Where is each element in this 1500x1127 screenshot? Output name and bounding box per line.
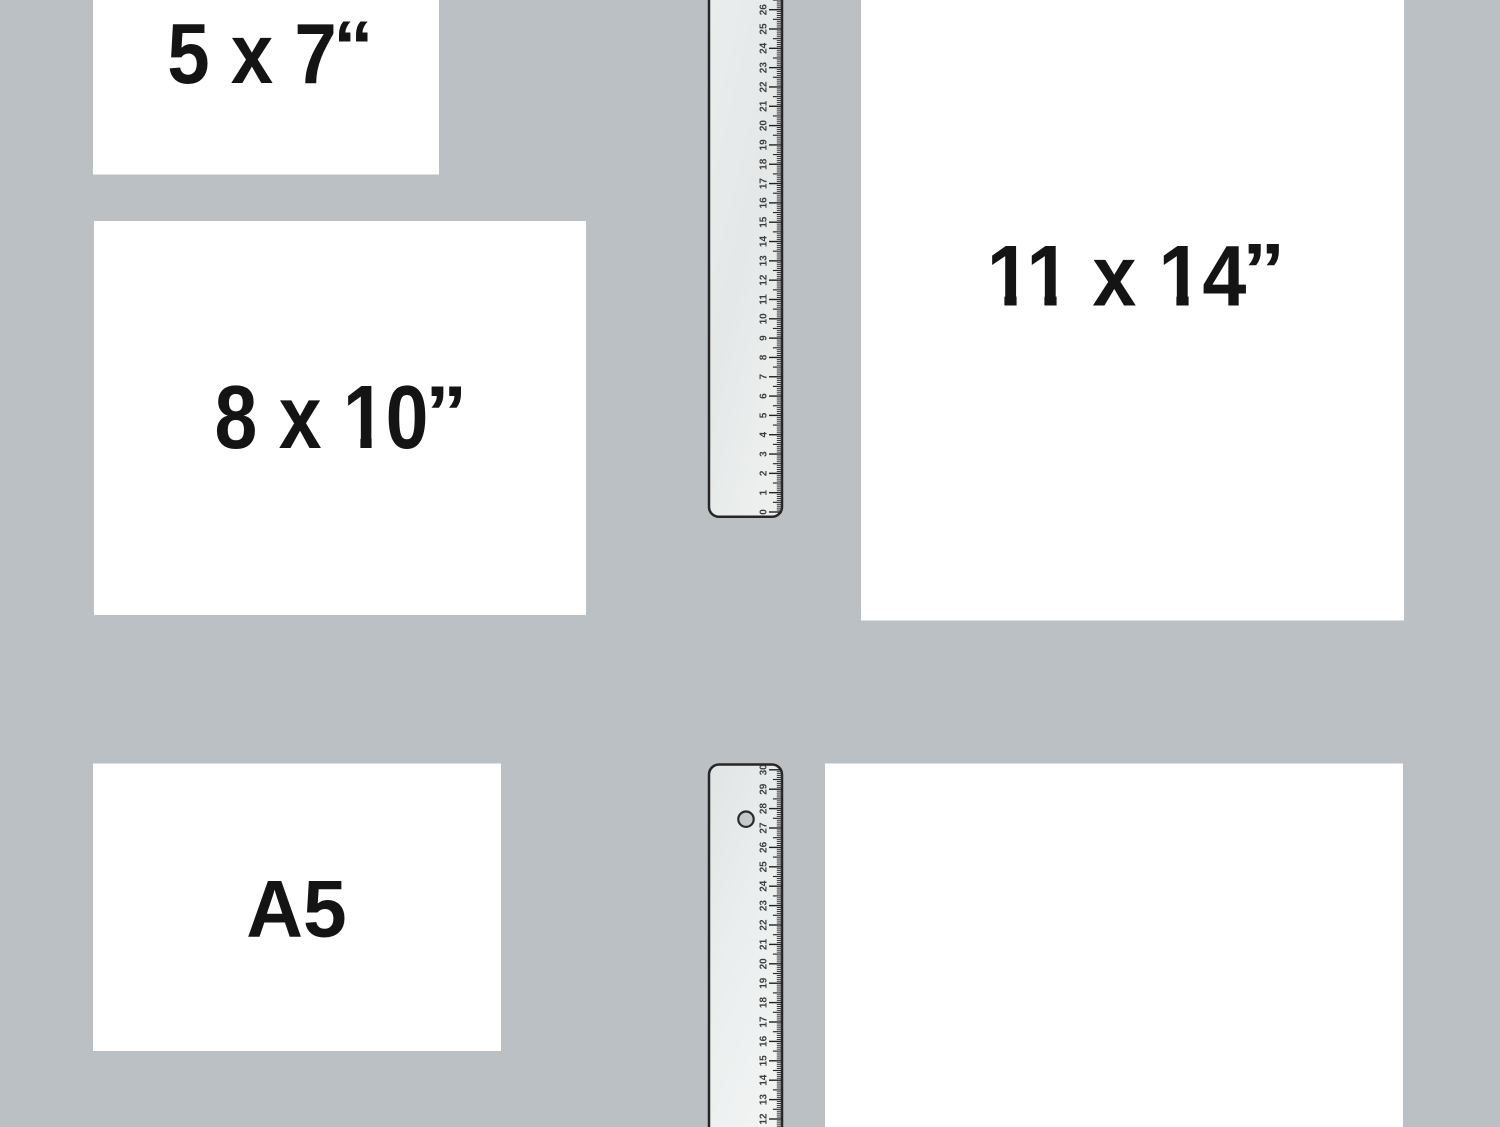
svg-text:20: 20 (759, 958, 770, 970)
svg-text:14: 14 (759, 1074, 770, 1086)
svg-text:2: 2 (759, 470, 770, 476)
svg-text:7: 7 (759, 374, 770, 380)
svg-text:30: 30 (759, 764, 770, 776)
svg-text:22: 22 (759, 919, 770, 931)
svg-text:8: 8 (759, 354, 770, 360)
svg-text:21: 21 (759, 100, 770, 112)
svg-text:8 x 10: 8 x 10 (215, 366, 429, 467)
svg-text:25: 25 (759, 861, 770, 873)
svg-text:18: 18 (759, 158, 770, 170)
svg-text:17: 17 (759, 1016, 770, 1028)
svg-text:16: 16 (759, 1035, 770, 1047)
svg-text:”: ” (425, 370, 467, 454)
svg-text:6: 6 (759, 393, 770, 399)
svg-text:5: 5 (759, 412, 770, 418)
svg-text:11: 11 (759, 294, 770, 305)
svg-text:21: 21 (759, 938, 770, 950)
svg-text:”: ” (1242, 229, 1285, 313)
svg-text:27: 27 (759, 822, 770, 834)
svg-text:19: 19 (759, 977, 770, 989)
svg-text:29: 29 (759, 783, 770, 795)
svg-text:15: 15 (759, 1055, 770, 1067)
svg-text:9: 9 (759, 335, 770, 341)
svg-text:16: 16 (759, 197, 770, 209)
svg-text:20: 20 (759, 120, 770, 132)
svg-text:23: 23 (759, 900, 770, 912)
svg-text:12: 12 (759, 1113, 770, 1125)
svg-text:11 x 14: 11 x 14 (987, 227, 1247, 324)
svg-text:13: 13 (759, 255, 770, 267)
svg-text:17: 17 (759, 178, 770, 190)
svg-text:23: 23 (759, 62, 770, 74)
svg-text:14: 14 (759, 236, 770, 248)
svg-text:25: 25 (759, 23, 770, 35)
svg-text:19: 19 (759, 139, 770, 151)
svg-text:24: 24 (759, 42, 770, 54)
svg-text:0: 0 (759, 509, 770, 515)
svg-text:15: 15 (759, 216, 770, 228)
svg-text:1: 1 (759, 489, 770, 495)
svg-text:13: 13 (759, 1094, 770, 1106)
svg-text:26: 26 (759, 841, 770, 853)
svg-text:18: 18 (759, 997, 770, 1009)
svg-text:3: 3 (759, 451, 770, 457)
svg-text:4: 4 (759, 432, 770, 438)
svg-text:10: 10 (759, 313, 770, 325)
svg-text:12: 12 (759, 274, 770, 286)
svg-text:“: “ (333, 7, 374, 86)
svg-text:28: 28 (759, 803, 770, 815)
svg-text:24: 24 (759, 880, 770, 892)
svg-text:A5: A5 (246, 863, 346, 953)
svg-text:26: 26 (759, 4, 770, 16)
svg-text:22: 22 (759, 81, 770, 93)
svg-text:5 x 7: 5 x 7 (167, 7, 337, 102)
